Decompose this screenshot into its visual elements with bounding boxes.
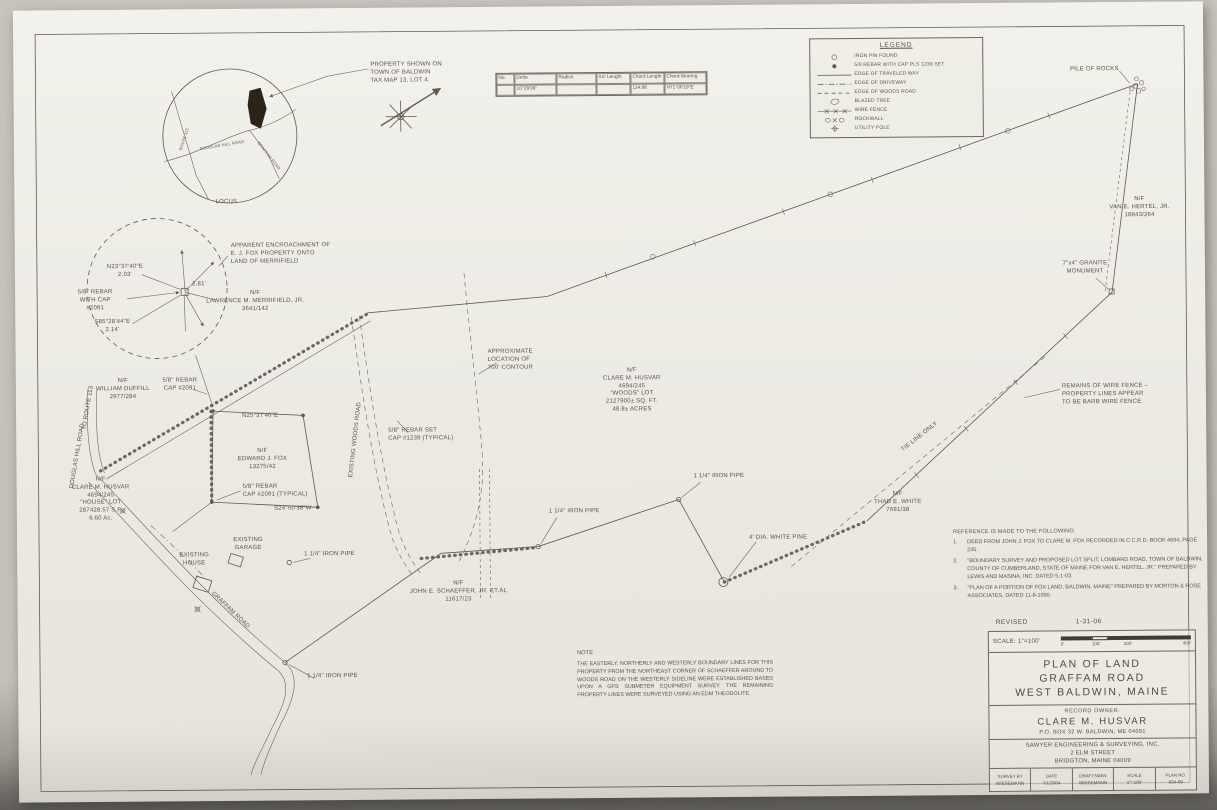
rockwall-line (421, 548, 536, 559)
blazed-tree-symbol (815, 97, 855, 106)
cell-value: WIESEMANN (1079, 780, 1107, 785)
revised-label: REVISED (996, 618, 1028, 625)
scale-tick-label: 0' (1061, 641, 1064, 646)
reference-text: "BOUNDARY SURVEY AND PROPOSED LOT SPLIT,… (967, 557, 1207, 582)
curve-table-header: No. (496, 74, 514, 85)
contour-label: APPROXIMATE LOCATION OF 700' CONTOUR (488, 349, 534, 373)
rebar-set-label: 5/8" REBAR SET CAP #1239 (TYPICAL) (388, 427, 453, 443)
detail-rebar-label: 5/8" REBAR WITH CAP #2091 (78, 289, 113, 313)
north-arrow-icon (381, 88, 441, 131)
cell-label: DATE (1046, 773, 1057, 778)
curve-table-cell (596, 84, 630, 95)
legend-item-label: WIRE FENCE (855, 108, 888, 113)
legend-title: LEGEND (814, 41, 978, 49)
curve-table-cell (496, 85, 514, 96)
woods-lot-label: N/F CLARE M. HUSVAR 4694/245 "WOODS" LOT… (603, 367, 661, 414)
curve-table-header: Chord Bearing (664, 72, 706, 83)
traveled-way-symbol (814, 71, 854, 79)
curve-table-cell: 114.98 (630, 84, 664, 95)
rebar-typical-label: 5/8" REBAR CAP #2091 (TYPICAL) (243, 483, 308, 499)
legend-item-label: UTILITY POLE (855, 126, 890, 131)
detail-bearing-top: N23°37'40"E 2.03' (107, 264, 143, 280)
reference-text: DEED FROM JOHN J. FOX TO CLARE M. FOX RE… (967, 537, 1207, 554)
legend-item-label: EDGE OF WOODS ROAD (855, 90, 917, 95)
detail-distance: 2.81' (192, 281, 206, 289)
plan-title: PLAN OF LAND GRAFFAM ROAD WEST BALDWIN, … (989, 651, 1195, 705)
wire-fence-symbol (815, 107, 855, 115)
cell-label: PLAN NO. (1165, 772, 1186, 777)
iron-pipe-label: 1 1/4" IRON PIPE (304, 551, 355, 559)
locus-property-blob (247, 88, 266, 129)
scale-row: SCALE: 1"=100' 0' 100' 200' 400' (989, 630, 1195, 653)
house-lot-label: N/F CLARE M. HUSVAR 4694/245 "HOUSE" LOT… (72, 476, 130, 523)
rebar-2091-label: 5/8" REBAR CAP #2091 (162, 377, 197, 393)
scale-cell: SCALE 1"=100' (1114, 768, 1156, 790)
scale-label: SCALE: 1"=100' (993, 639, 1040, 645)
title-block-cells: SURVEY BY WIESEMANN DATE 7/1/2004 DRAFTS… (990, 767, 1196, 791)
duffill-label: N/F WILLIAM DUFFILL 2977/284 (96, 378, 150, 402)
reference-text: "PLAN OF A PORTION OF FOX LAND, BALDWIN,… (967, 584, 1207, 601)
reference-number: 1. (953, 539, 967, 554)
scanned-survey-plan: LEGEND IRON PIN FOUND 5/8 REBAR WITH CAP… (0, 0, 1217, 810)
references-heading: REFERENCE IS MADE TO THE FOLLOWING: (953, 527, 1207, 535)
legend-item-label: 5/8 REBAR WITH CAP PLS 1239 SET (854, 62, 944, 68)
bearing-label: N25°37'40"E (242, 413, 278, 421)
legend-item-label: ROCKWALL (855, 117, 884, 122)
existing-house-label: EXISTING HOUSE (179, 552, 209, 568)
scale-ticks: 0' 100' 200' 400' (1061, 640, 1191, 641)
wire-fence-remains-label: REMAINS OF WIRE FENCE – PROPERTY LINES A… (1062, 383, 1148, 407)
bearing-label: S24°50'38"W (274, 505, 312, 513)
curve-table-header: Delta (514, 73, 556, 84)
locus-label: LOCUS (216, 199, 238, 207)
scale-tick-label: 200' (1124, 641, 1132, 646)
schaeffer-label: N/F JOHN E. SCHAEFFER, JR. ET.AL 11617/2… (410, 580, 507, 604)
locus-callout: PROPERTY SHOWN ON TOWN OF BALDWIN TAX MA… (370, 61, 442, 85)
curve-table-header: Radius (556, 73, 596, 84)
curve-table-header: Chord Length (630, 73, 664, 84)
merrifield-label: N/F LAWRENCE M. MERRIFIELD, JR. 3641/142 (206, 290, 304, 314)
contour-line (457, 273, 483, 561)
granite-monument-symbol (1109, 289, 1114, 294)
plan-no-cell: PLAN NO. 004-89 (1155, 767, 1196, 789)
reference-item: 3. "PLAN OF A PORTION OF FOX LAND, BALDW… (953, 584, 1207, 601)
note-body: THE EASTERLY, NORTHERLY AND WESTERLY BOU… (577, 660, 773, 701)
cell-value: 7/1/2004 (1043, 780, 1061, 785)
curve-table-cell: 10°28'08" (514, 84, 556, 95)
rockwall-symbol (815, 116, 855, 124)
paper-tilt-wrapper: LEGEND IRON PIN FOUND 5/8 REBAR WITH CAP… (0, 0, 1217, 810)
title-block: REVISED 1-31-06 SCALE: 1"=100' 0' 100' 2… (988, 611, 1197, 791)
legend-row: UTILITY POLE (815, 123, 979, 133)
white-pine-label: 4' DIA. WHITE PINE (749, 534, 807, 542)
scale-bar (1061, 635, 1191, 640)
white-label: N/F THAD E. WHITE 7691/38 (874, 491, 921, 515)
date-cell: DATE 7/1/2004 (1031, 768, 1073, 790)
woods-road-line (351, 317, 413, 577)
scale-tick-label: 100' (1092, 641, 1100, 646)
survey-by-cell: SURVEY BY WIESEMANN (990, 769, 1032, 791)
iron-pipe-label: 1 1/4" IRON PIPE (549, 508, 600, 516)
owner-section: RECORD OWNER: CLARE M. HUSVAR P.O. BOX 3… (989, 704, 1195, 740)
curve-table-cell (556, 84, 596, 95)
firm-section: SAWYER ENGINEERING & SURVEYING, INC. 2 E… (990, 738, 1196, 769)
locus-inset (162, 68, 369, 204)
reference-item: 1. DEED FROM JOHN J. FOX TO CLARE M. FOX… (953, 537, 1207, 554)
roads (86, 273, 492, 776)
fox-parcel-label: N/F EDWARD J. FOX 13275/42 (238, 448, 288, 472)
existing-garage-label: EXISTING GARAGE (233, 537, 263, 553)
scale-tick-label: 400' (1183, 640, 1191, 645)
references-block: REFERENCE IS MADE TO THE FOLLOWING: 1. D… (953, 527, 1208, 605)
driveway-symbol (814, 80, 854, 88)
cell-label: SURVEY BY (998, 774, 1023, 779)
cell-label: SCALE (1127, 773, 1141, 778)
rockwall-line (211, 411, 212, 502)
curve-table-header: Arc Length (596, 73, 630, 84)
curve-table-cell: N71°06'19"E (664, 83, 706, 94)
draftsman-cell: DRAFTSMAN WIESEMANN (1073, 768, 1115, 790)
reference-item: 2. "BOUNDARY SURVEY AND PROPOSED LOT SPL… (953, 557, 1207, 582)
iron-pipe-label: 1 1/4" IRON PIPE (307, 673, 358, 681)
iron-pipe-label: 1 1/4" IRON PIPE (694, 473, 745, 481)
reference-number: 3. (953, 586, 967, 601)
iron-pin-found-symbol (814, 53, 854, 61)
cell-value: 004-89 (1169, 779, 1183, 784)
granite-monument-label: 7"x4" GRANITE MONUMENT (1062, 260, 1107, 276)
title-box: SCALE: 1"=100' 0' 100' 200' 400' PLAN OF… (988, 629, 1197, 791)
legend-panel: LEGEND IRON PIN FOUND 5/8 REBAR WITH CAP… (809, 37, 984, 138)
detail-bearing-bottom: S85°28'44"E 2.14' (94, 319, 130, 335)
driveway-line (151, 525, 204, 577)
legend-item-label: EDGE OF TRAVELED WAY (854, 72, 919, 78)
iron-pipe-symbol (287, 560, 291, 564)
woods-road-symbol (815, 89, 855, 97)
note-block: NOTE THE EASTERLY, NORTHERLY AND WESTERL… (577, 649, 773, 701)
owner-heading: RECORD OWNER: (989, 707, 1195, 715)
legend-item-label: BLAZED TREE (855, 99, 891, 104)
note-title: NOTE (577, 649, 773, 657)
owner-name: CLARE M. HUSVAR (989, 715, 1195, 728)
cell-label: DRAFTSMAN (1079, 773, 1106, 778)
cell-value: WIESEMANN (996, 781, 1024, 786)
encroachment-callout: APPARENT ENCROACHMENT OF E. J. FOX PROPE… (231, 242, 331, 266)
curve-table: No. Delta Radius Arc Length Chord Length… (495, 71, 707, 97)
owner-address: P.O. BOX 32 W. BALDWIN, ME 04091 (990, 728, 1196, 736)
existing-house-footprint (193, 576, 212, 592)
legend-item-label: IRON PIN FOUND (854, 54, 897, 59)
revision-row: REVISED 1-31-06 (988, 611, 1196, 631)
rockwall-line (724, 521, 867, 582)
pile-of-rocks-label: PILE OF ROCKS (1070, 66, 1119, 74)
revised-date: 1-31-06 (1076, 618, 1102, 625)
legend-item-label: EDGE OF DRIVEWAY (854, 81, 906, 86)
utility-pole-symbol (815, 124, 855, 133)
reference-number: 2. (953, 559, 967, 582)
existing-garage-footprint (228, 553, 243, 566)
rebar-set-symbol (814, 62, 854, 70)
cell-value: 1"=100' (1127, 780, 1142, 785)
hertel-label: N/F VAN E. HERTEL, JR. 18843/264 (1109, 196, 1170, 220)
